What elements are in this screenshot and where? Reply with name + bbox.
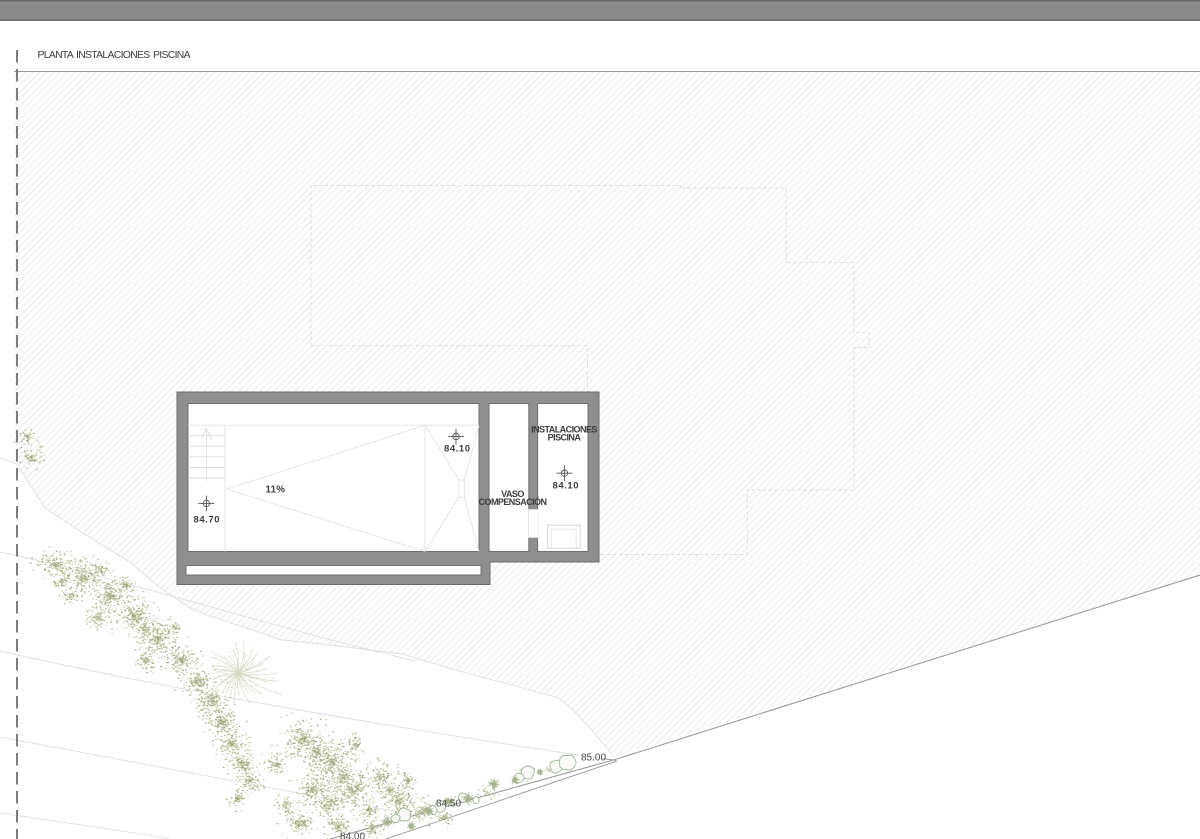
svg-text:PLANTA INSTALACIONES PISCINA: PLANTA INSTALACIONES PISCINA <box>38 50 191 61</box>
svg-text:84.00: 84.00 <box>340 832 365 839</box>
svg-text:85.00: 85.00 <box>581 753 606 764</box>
svg-text:11%: 11% <box>266 485 286 496</box>
svg-text:84.10: 84.10 <box>444 443 471 454</box>
svg-text:COMPENSACIÓN: COMPENSACIÓN <box>479 496 547 507</box>
svg-text:84.50: 84.50 <box>436 799 461 810</box>
svg-text:84.10: 84.10 <box>553 480 580 491</box>
svg-text:PISCINA: PISCINA <box>548 433 582 443</box>
svg-text:84.70: 84.70 <box>194 515 221 526</box>
